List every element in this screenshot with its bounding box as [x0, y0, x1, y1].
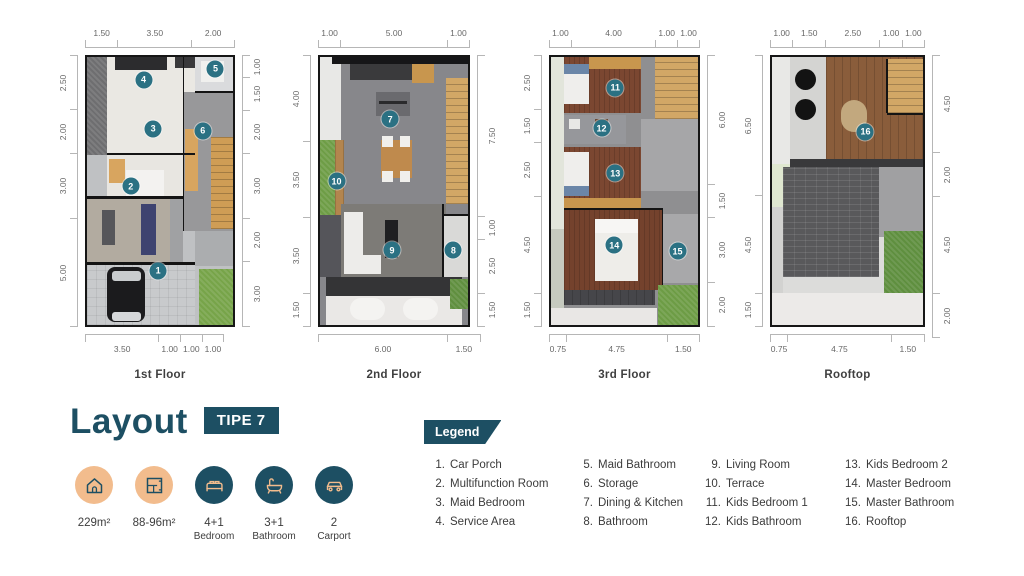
legend-item-label: Living Room	[726, 459, 790, 471]
room-area	[326, 277, 462, 296]
room-area	[795, 99, 816, 120]
room-marker: 4	[135, 71, 152, 88]
dimension-segment: 4.50	[932, 55, 940, 153]
dimension-segment: 1.50	[477, 293, 485, 327]
floor-plan: 78910	[318, 55, 470, 327]
dimension-segment: 1.50	[534, 109, 542, 143]
legend-item-number: 7.	[572, 497, 593, 509]
dimension-segment: 3.00	[242, 153, 250, 219]
dimension-label: 1.50	[488, 302, 497, 319]
legend-item: 5.Maid Bathroom	[572, 459, 700, 471]
stat-label: Bedroom	[194, 531, 235, 542]
dimension-label: 4.50	[744, 236, 753, 253]
dimension-label: 4.75	[608, 345, 625, 354]
room-area	[363, 255, 381, 274]
legend-item-number: 4.	[424, 516, 445, 528]
stat-item: 2Carport	[304, 466, 364, 542]
legend-item-label: Master Bedroom	[866, 478, 951, 490]
room-marker-number: 2	[128, 181, 133, 191]
room-marker: 10	[328, 173, 345, 190]
legend-columns: 1.Car Porch2.Multifunction Room3.Maid Be…	[424, 459, 992, 528]
dimension-label: 2.50	[845, 29, 862, 38]
room-area	[211, 137, 233, 228]
legend-item-label: Bathroom	[598, 516, 648, 528]
dimension-segment: 3.00	[70, 153, 78, 219]
legend-item: 2.Multifunction Room	[424, 478, 572, 490]
room-area	[199, 269, 233, 325]
legend-item: 8.Bathroom	[572, 516, 700, 528]
room-marker: 15	[669, 243, 686, 260]
dimension-label: 1.50	[93, 29, 110, 38]
legend-item: 3.Maid Bedroom	[424, 497, 572, 509]
room-marker-number: 4	[141, 75, 146, 85]
room-area	[195, 91, 233, 93]
legend-column: 1.Car Porch2.Multifunction Room3.Maid Be…	[424, 459, 572, 528]
dimension-chain: 4.003.503.501.50	[303, 55, 311, 327]
legend-item: 16.Rooftop	[840, 516, 992, 528]
dimension-label: 4.50	[943, 237, 952, 254]
legend-item-label: Kids Bedroom 1	[726, 497, 808, 509]
dimension-segment: 6.50	[755, 55, 763, 196]
dimension-segment: 1.50	[303, 293, 311, 327]
dimension-segment: 4.00	[571, 40, 656, 48]
legend-item-number: 13.	[840, 459, 861, 471]
dimension-chain: 0.754.751.50	[770, 334, 925, 342]
bed-icon	[195, 466, 233, 504]
dimension-chain: 0.754.751.50	[549, 334, 700, 342]
room-area	[772, 207, 783, 293]
room-area	[879, 167, 923, 237]
dimension-label: 1.00	[773, 29, 790, 38]
legend-item-label: Dining & Kitchen	[598, 497, 683, 509]
dimension-segment: 2.50	[477, 239, 485, 294]
dimension-label: 1.00	[450, 29, 467, 38]
dimension-label: 1.00	[680, 29, 697, 38]
room-area	[112, 312, 141, 321]
legend-item-label: Multifunction Room	[450, 478, 548, 490]
room-marker-number: 7	[388, 114, 393, 124]
dimension-chain: 1.005.001.00	[318, 40, 470, 48]
room-area	[662, 210, 663, 285]
dimension-label: 1.00	[205, 345, 222, 354]
room-area	[170, 198, 183, 264]
type-badge: TIPE 7	[204, 407, 279, 434]
title-row: Layout TIPE 7	[70, 404, 279, 439]
room-area	[887, 113, 923, 116]
dimension-segment: 1.00	[447, 40, 470, 48]
room-marker: 3	[145, 120, 162, 137]
dimension-label: 1.50	[456, 345, 473, 354]
room-area	[87, 262, 195, 264]
room-area	[326, 296, 462, 325]
dimension-segment: 1.00	[902, 40, 925, 48]
dimension-label: 1.50	[253, 86, 262, 103]
dimension-segment: 3.50	[85, 334, 159, 342]
room-area	[569, 119, 581, 130]
dimension-chain: 6.504.501.50	[755, 55, 763, 327]
dimension-label: 5.00	[386, 29, 403, 38]
dimension-label: 6.50	[744, 117, 753, 134]
legend-item-number: 10.	[700, 478, 721, 490]
dimension-label: 3.00	[718, 242, 727, 259]
room-area	[884, 231, 923, 293]
dimension-chain: 3.501.001.001.00	[85, 334, 224, 342]
room-marker-number: 5	[213, 64, 218, 74]
room-marker: 8	[445, 242, 462, 259]
dimension-label: 2.00	[943, 166, 952, 183]
legend-item-number: 5.	[572, 459, 593, 471]
dimension-segment: 1.00	[202, 334, 225, 342]
room-area	[87, 196, 183, 198]
legend-item-number: 3.	[424, 497, 445, 509]
dimension-segment: 2.50	[534, 142, 542, 197]
legend-item-label: Kids Bathroom	[726, 516, 801, 528]
dimension-segment: 5.00	[70, 218, 78, 327]
dimension-chain: 2.501.502.504.501.50	[534, 55, 542, 327]
floor-plan-panel: 11121314151.004.001.001.000.754.751.502.…	[549, 55, 700, 327]
legend-item-number: 2.	[424, 478, 445, 490]
legend-item-number: 16.	[840, 516, 861, 528]
dimension-segment: 2.00	[191, 40, 235, 48]
dimension-segment: 3.00	[707, 217, 715, 283]
car-icon	[315, 466, 353, 504]
dimension-chain: 4.502.004.502.00	[932, 55, 940, 338]
legend-item-label: Maid Bathroom	[598, 459, 676, 471]
dimension-chain: 1.004.001.001.00	[549, 40, 700, 48]
dimension-label: 1.50	[718, 193, 727, 210]
room-area	[564, 186, 589, 197]
legend-item-label: Rooftop	[866, 516, 906, 528]
dimension-label: 1.00	[658, 29, 675, 38]
room-area	[320, 215, 341, 277]
room-area	[112, 271, 141, 280]
room-marker-number: 12	[597, 123, 607, 133]
legend-item-number: 11.	[700, 497, 721, 509]
floor-label: 2nd Floor	[288, 369, 500, 381]
room-marker-number: 11	[610, 83, 620, 93]
room-area	[790, 159, 923, 167]
dimension-label: 4.00	[292, 90, 301, 107]
dimension-segment: 4.50	[755, 195, 763, 293]
stats-row: 229m²88-96m²4+1Bedroom3+1Bathroom2Carpor…	[64, 466, 364, 542]
room-area	[403, 298, 439, 319]
room-marker: 1	[150, 262, 167, 279]
room-area	[450, 279, 468, 308]
dimension-segment: 1.50	[891, 334, 925, 342]
room-area	[564, 152, 589, 187]
dimension-segment: 1.50	[707, 184, 715, 218]
floor-plan: 16	[770, 55, 925, 327]
floor-label: 3rd Floor	[519, 369, 730, 381]
dimension-label: 0.75	[550, 345, 567, 354]
stat-item: 229m²	[64, 466, 124, 542]
legend-item-number: 15.	[840, 497, 861, 509]
dimension-segment: 0.75	[770, 334, 788, 342]
dimension-segment: 1.00	[158, 334, 181, 342]
dimension-segment: 2.00	[70, 109, 78, 154]
stat-label: Bathroom	[252, 531, 295, 542]
room-area	[141, 204, 156, 255]
room-marker: 14	[606, 237, 623, 254]
stat-item: 4+1Bedroom	[184, 466, 244, 542]
dimension-label: 2.50	[488, 258, 497, 275]
room-area	[350, 64, 412, 80]
legend-item-number: 1.	[424, 459, 445, 471]
stat-label: Carport	[317, 531, 350, 542]
legend-item: 4.Service Area	[424, 516, 572, 528]
room-area	[551, 57, 564, 229]
dimension-segment: 1.00	[477, 216, 485, 239]
dimension-label: 1.50	[523, 302, 532, 319]
legend-item: 14.Master Bedroom	[840, 478, 992, 490]
dimension-segment: 6.00	[707, 55, 715, 185]
dimension-segment: 6.00	[318, 334, 448, 342]
room-marker-number: 6	[200, 126, 205, 136]
house-icon	[75, 466, 113, 504]
dimension-segment: 1.50	[447, 334, 481, 342]
dimension-label: 3.50	[292, 172, 301, 189]
floor-plan-panel: 1234561.503.502.003.501.001.001.002.502.…	[85, 55, 235, 327]
dimension-label: 2.00	[253, 124, 262, 141]
dimension-segment: 1.50	[85, 40, 118, 48]
room-marker-number: 10	[332, 176, 342, 186]
dimension-segment: 1.00	[318, 40, 341, 48]
dimension-segment: 1.50	[755, 293, 763, 327]
dimension-label: 1.00	[161, 345, 178, 354]
room-area	[175, 57, 195, 68]
legend-item-label: Maid Bedroom	[450, 497, 525, 509]
dimension-segment: 2.50	[825, 40, 880, 48]
dimension-label: 3.00	[59, 178, 68, 195]
room-area	[887, 59, 923, 113]
stat-item: 88-96m²	[124, 466, 184, 542]
dimension-segment: 1.50	[667, 334, 701, 342]
legend-item-number: 12.	[700, 516, 721, 528]
dimension-label: 2.00	[253, 232, 262, 249]
room-area	[641, 119, 698, 191]
room-area	[102, 210, 115, 245]
dimension-chain: 6.001.50	[318, 334, 481, 342]
dimension-segment: 4.75	[566, 334, 668, 342]
room-area	[783, 167, 880, 277]
dimension-label: 3.50	[292, 247, 301, 264]
legend-item-label: Car Porch	[450, 459, 502, 471]
room-marker-number: 9	[390, 245, 395, 255]
room-marker: 6	[194, 122, 211, 139]
legend-column: 13.Kids Bedroom 214.Master Bedroom15.Mas…	[840, 459, 992, 528]
dimension-chain: 1.503.502.00	[85, 40, 235, 48]
room-area	[344, 212, 363, 274]
legend-item-number: 8.	[572, 516, 593, 528]
legend-item: 11.Kids Bedroom 1	[700, 497, 840, 509]
dimension-label: 1.00	[183, 345, 200, 354]
legend-item-label: Storage	[598, 478, 638, 490]
dimension-segment: 2.50	[534, 55, 542, 110]
dimension-label: 1.50	[523, 118, 532, 135]
dimension-label: 1.50	[900, 345, 917, 354]
stat-value: 88-96m²	[133, 517, 176, 529]
stat-value: 3+1	[264, 517, 284, 529]
room-area	[412, 64, 434, 83]
dimension-segment: 3.50	[303, 217, 311, 294]
room-area	[400, 136, 410, 147]
room-area	[115, 57, 168, 70]
room-marker: 7	[382, 111, 399, 128]
dimension-label: 1.50	[801, 29, 818, 38]
dimension-segment: 4.50	[534, 196, 542, 294]
dimension-segment: 2.00	[707, 282, 715, 327]
dimension-chain: 2.502.003.005.00	[70, 55, 78, 327]
dimension-label: 6.00	[718, 112, 727, 129]
room-marker: 5	[207, 60, 224, 77]
dimension-label: 6.00	[375, 345, 392, 354]
dimension-label: 2.50	[523, 161, 532, 178]
legend-item: 6.Storage	[572, 478, 700, 490]
dimension-segment: 5.00	[340, 40, 448, 48]
dimension-label: 2.00	[59, 123, 68, 140]
dimension-label: 2.00	[943, 307, 952, 324]
room-area	[772, 57, 790, 164]
page-title: Layout	[70, 404, 188, 439]
dimension-label: 4.00	[605, 29, 622, 38]
floor-plan-panel: 789101.005.001.006.001.504.003.503.501.5…	[318, 55, 470, 327]
room-marker: 11	[607, 79, 624, 96]
room-area	[400, 171, 410, 182]
room-area	[183, 57, 184, 231]
room-area	[564, 208, 662, 210]
room-marker-number: 8	[451, 245, 456, 255]
dimension-label: 0.75	[771, 345, 788, 354]
room-area	[564, 64, 589, 75]
brochure-page: 1234561.503.502.003.501.001.001.002.502.…	[0, 0, 1024, 576]
dimension-segment: 3.50	[303, 141, 311, 218]
room-area	[442, 204, 443, 276]
room-area	[655, 57, 698, 119]
dimension-label: 1.00	[883, 29, 900, 38]
dimension-segment: 0.75	[549, 334, 567, 342]
dimension-segment: 2.00	[242, 218, 250, 262]
legend-item: 1.Car Porch	[424, 459, 572, 471]
room-marker-number: 15	[673, 246, 683, 256]
dimension-label: 1.00	[253, 58, 262, 75]
room-marker-number: 13	[610, 168, 620, 178]
floor-plan-panel: 161.001.502.501.001.000.754.751.506.504.…	[770, 55, 925, 327]
dimension-segment: 1.00	[879, 40, 902, 48]
legend-item: 12.Kids Bathroom	[700, 516, 840, 528]
room-area	[382, 171, 392, 182]
dimension-label: 7.50	[488, 128, 497, 145]
dimension-chain: 6.001.503.002.00	[707, 55, 715, 327]
dimension-label: 4.50	[523, 237, 532, 254]
room-marker-number: 1	[156, 266, 161, 276]
bathtub-icon	[255, 466, 293, 504]
dimension-chain: 7.501.002.501.50	[477, 55, 485, 327]
dimension-label: 1.50	[292, 302, 301, 319]
legend-item: 13.Kids Bedroom 2	[840, 459, 992, 471]
room-marker: 16	[857, 123, 874, 140]
room-marker: 12	[593, 120, 610, 137]
room-area	[443, 214, 468, 216]
room-area	[886, 59, 888, 113]
room-marker: 2	[122, 178, 139, 195]
dimension-segment: 3.00	[242, 261, 250, 327]
room-area	[772, 293, 923, 325]
legend-item-label: Master Bathroom	[866, 497, 954, 509]
room-area	[320, 57, 341, 140]
floor-plan: 1112131415	[549, 55, 700, 327]
dimension-label: 2.00	[718, 296, 727, 313]
dimension-segment: 1.50	[792, 40, 826, 48]
dimension-segment: 1.00	[242, 55, 250, 78]
legend-item: 7.Dining & Kitchen	[572, 497, 700, 509]
room-marker-number: 16	[860, 127, 870, 137]
stat-value: 4+1	[204, 517, 224, 529]
dimension-label: 1.00	[905, 29, 922, 38]
legend-item-label: Service Area	[450, 516, 515, 528]
dimension-label: 3.50	[147, 29, 164, 38]
dimension-label: 1.00	[488, 220, 497, 237]
room-area	[87, 198, 170, 264]
dimension-segment: 7.50	[477, 55, 485, 217]
dimension-label: 2.00	[205, 29, 222, 38]
legend-block: Legend 1.Car Porch2.Multifunction Room3.…	[424, 420, 992, 528]
dimension-label: 1.00	[552, 29, 569, 38]
dimension-segment: 2.00	[932, 152, 940, 197]
dimension-segment: 4.75	[787, 334, 891, 342]
room-area	[195, 231, 233, 266]
room-marker-number: 14	[609, 240, 619, 250]
room-area	[595, 219, 638, 232]
dimension-chain: 1.001.502.003.002.003.00	[242, 55, 250, 327]
dimension-label: 4.75	[831, 345, 848, 354]
room-area	[564, 290, 655, 305]
legend-column: 9.Living Room10.Terrace11.Kids Bedroom 1…	[700, 459, 840, 528]
room-area	[446, 78, 468, 204]
dimension-label: 3.50	[114, 345, 131, 354]
dimension-segment: 4.50	[932, 196, 940, 294]
room-area	[109, 159, 125, 183]
dimension-segment: 1.00	[677, 40, 700, 48]
room-marker: 9	[384, 242, 401, 259]
room-area	[332, 57, 468, 64]
dimension-label: 3.00	[253, 286, 262, 303]
dimension-segment: 3.50	[117, 40, 192, 48]
dimension-segment: 1.00	[655, 40, 678, 48]
legend-item-label: Terrace	[726, 478, 764, 490]
floor-label: Rooftop	[740, 369, 955, 381]
room-area	[589, 57, 640, 69]
dimension-label: 3.00	[253, 178, 262, 195]
room-marker-number: 3	[151, 124, 156, 134]
floorplan-icon	[135, 466, 173, 504]
dimension-segment: 1.00	[180, 334, 203, 342]
room-area	[185, 129, 198, 191]
dimension-segment: 1.50	[242, 77, 250, 111]
legend-item: 15.Master Bathroom	[840, 497, 992, 509]
stat-value: 229m²	[78, 517, 111, 529]
dimension-segment: 4.00	[303, 55, 311, 142]
legend-column: 5.Maid Bathroom6.Storage7.Dining & Kitch…	[572, 459, 700, 528]
floor-plan: 123456	[85, 55, 235, 327]
legend-item: 9.Living Room	[700, 459, 840, 471]
dimension-segment: 2.50	[70, 55, 78, 110]
room-area	[551, 308, 657, 325]
room-area	[658, 285, 698, 325]
stat-item: 3+1Bathroom	[244, 466, 304, 542]
dimension-label: 2.50	[59, 74, 68, 91]
legend-item-number: 9.	[700, 459, 721, 471]
dimension-label: 2.50	[523, 74, 532, 91]
